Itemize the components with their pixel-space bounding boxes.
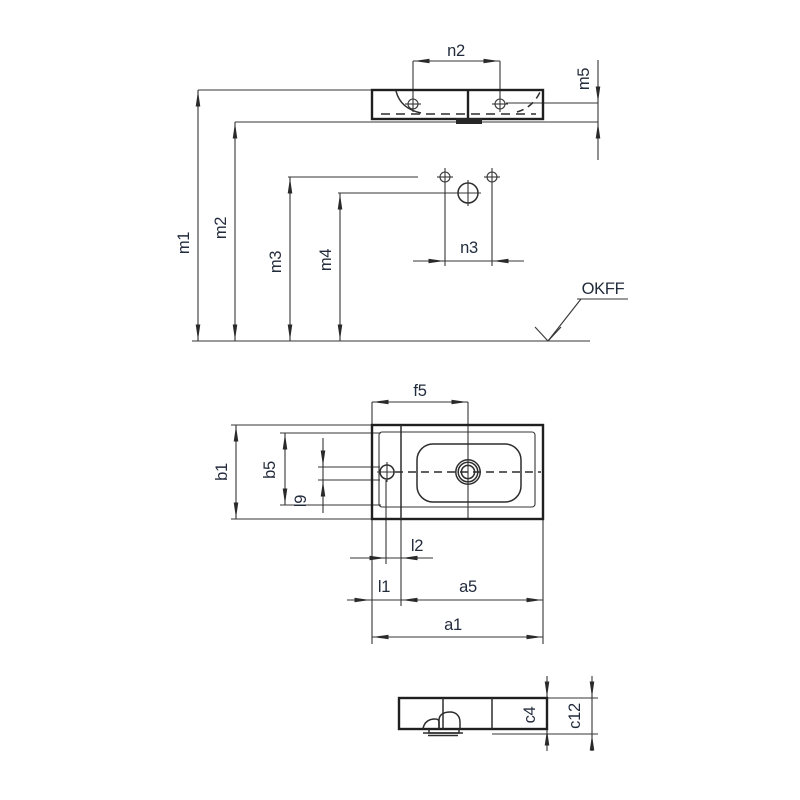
front-elevation-view: n2 m5 m1 m2 m3 m4 n3 OKFF <box>175 42 628 341</box>
dim-label-a1: a1 <box>444 616 462 634</box>
dim-label-c4: c4 <box>521 706 539 723</box>
dim-label-a5: a5 <box>459 578 477 596</box>
bowl-front-curve-right <box>517 92 540 112</box>
dim-label-m3: m3 <box>267 251 285 273</box>
side-section-view: c4 c12 <box>399 676 598 751</box>
tap-hole <box>377 462 397 482</box>
drain-front-mark <box>456 118 482 124</box>
okff-marker <box>535 299 628 341</box>
fixing-hole-right <box>492 96 508 112</box>
dim-label-n3: n3 <box>460 239 478 257</box>
dim-label-m4: m4 <box>317 249 335 271</box>
dim-label-m1: m1 <box>175 232 193 254</box>
dim-label-b1: b1 <box>213 463 231 481</box>
technical-drawing: n2 m5 m1 m2 m3 m4 n3 OKFF <box>0 0 800 800</box>
plan-view: f5 b1 b5 l9 l2 l1 a5 a1 <box>213 382 543 644</box>
okff-label: OKFF <box>582 280 625 298</box>
dim-label-f5: f5 <box>413 382 426 400</box>
fixing-hole-left <box>405 96 421 112</box>
dim-label-c12: c12 <box>566 703 584 729</box>
dim-label-l1: l1 <box>378 578 390 596</box>
waste-outlet <box>455 180 481 206</box>
dim-label-l2: l2 <box>411 537 423 555</box>
dim-label-m5: m5 <box>575 68 593 90</box>
dim-label-m2: m2 <box>212 217 230 239</box>
dim-label-l9: l9 <box>292 495 310 507</box>
dim-label-n2: n2 <box>447 42 465 60</box>
drawing-canvas: n2 m5 m1 m2 m3 m4 n3 OKFF <box>0 0 800 800</box>
bowl-outline <box>417 444 521 502</box>
dim-label-b5: b5 <box>261 461 279 479</box>
